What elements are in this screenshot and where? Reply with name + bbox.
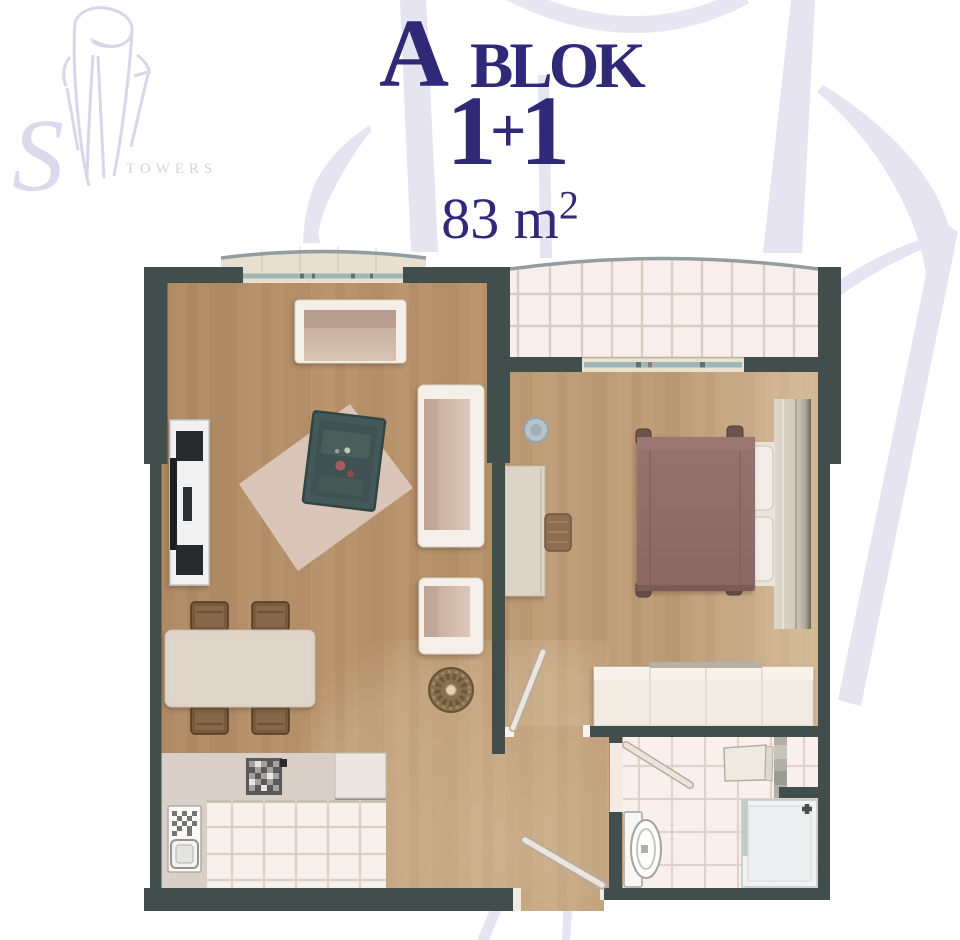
svg-text:A: A <box>379 0 449 107</box>
svg-text:TOWERS: TOWERS <box>126 161 217 177</box>
svg-text:S: S <box>12 98 64 213</box>
svg-text:83 m2: 83 m2 <box>441 183 579 252</box>
